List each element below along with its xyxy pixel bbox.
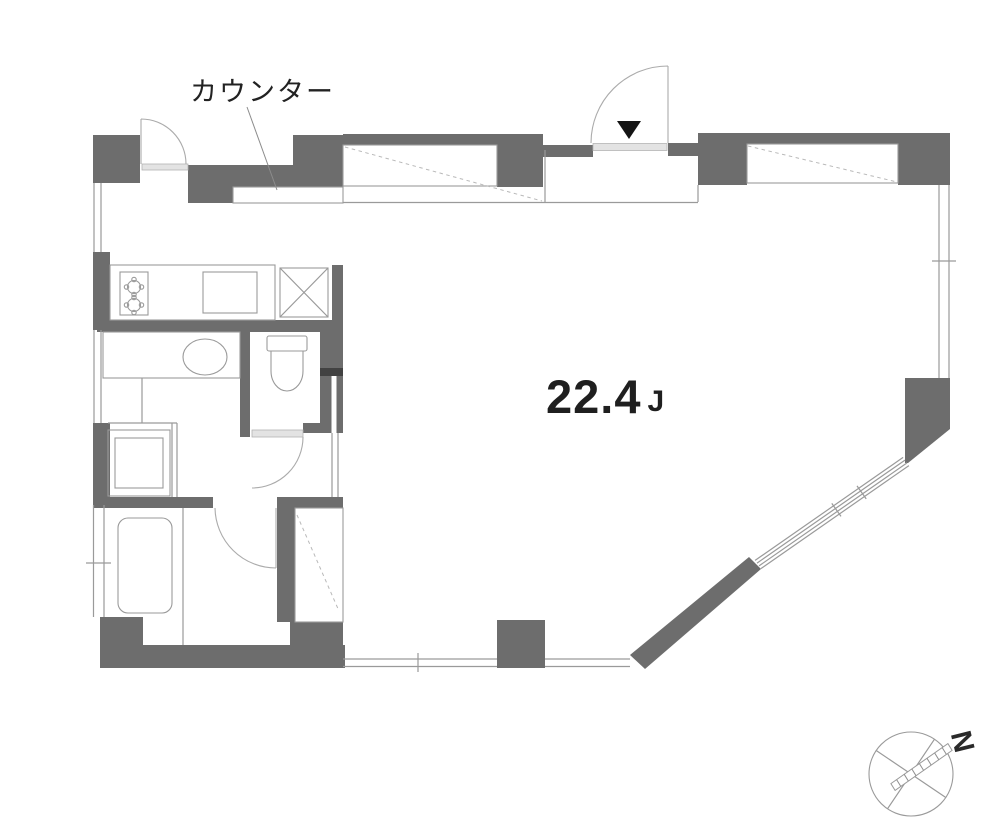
closet-lower-diagonal — [297, 515, 339, 611]
wall — [277, 508, 295, 622]
wall — [240, 332, 250, 437]
entrance-marker-icon — [617, 121, 641, 139]
wall-diagonal — [630, 557, 761, 669]
wall — [93, 423, 110, 508]
refrigerator-space-icon — [280, 268, 328, 317]
wall — [100, 617, 143, 668]
toilet-icon — [267, 336, 307, 391]
window-diagonal — [755, 457, 909, 568]
kitchen — [110, 265, 328, 320]
wall — [93, 252, 110, 330]
counter-bar — [233, 187, 343, 203]
closet-lower — [295, 508, 343, 622]
door-top-left — [141, 119, 186, 164]
wall — [343, 134, 543, 145]
pocket-door-track — [320, 368, 343, 376]
wall-corner — [905, 378, 950, 463]
bathtub-icon — [118, 518, 172, 613]
wall — [698, 133, 950, 144]
counter-label: カウンター — [190, 77, 335, 107]
washing-machine-icon — [108, 430, 170, 496]
bathroom-door — [215, 508, 276, 568]
toilet-room — [267, 336, 307, 391]
wall — [93, 135, 140, 183]
entrance-sill — [593, 144, 667, 151]
wall — [293, 135, 343, 187]
wall — [188, 165, 233, 203]
door-sill — [252, 430, 303, 437]
washroom — [103, 332, 240, 497]
labels: カウンター 22.4J — [190, 77, 664, 423]
floor-plan-drawing: カウンター 22.4J N — [0, 0, 1007, 840]
window-bottom-right — [545, 659, 630, 667]
window-left-lower — [86, 505, 111, 617]
window-bottom-left — [343, 653, 497, 672]
wall — [290, 622, 343, 668]
washbasin-icon — [183, 339, 227, 375]
wall — [332, 265, 343, 332]
wall — [898, 144, 950, 185]
thin-partition — [332, 433, 338, 497]
closet-entry — [343, 145, 497, 186]
area-label: 22.4J — [546, 370, 664, 423]
wall — [543, 145, 593, 157]
window-right — [932, 185, 956, 378]
windows — [86, 183, 956, 672]
pocket-door-slot — [332, 376, 337, 433]
wall — [698, 144, 747, 185]
compass: N — [869, 728, 980, 816]
wall — [497, 145, 543, 187]
door-sill — [142, 164, 188, 170]
compass-north-label: N — [944, 728, 980, 756]
window-left-upper — [94, 183, 101, 252]
wall — [108, 497, 213, 508]
window-left-middle — [94, 330, 101, 423]
wall — [277, 497, 343, 508]
floor-plan: カウンター 22.4J N — [0, 0, 1007, 840]
toilet-door — [252, 437, 303, 488]
wall-pillar — [497, 620, 545, 668]
walls — [93, 133, 950, 669]
wall — [233, 165, 293, 187]
wall — [668, 143, 698, 156]
wall — [97, 320, 343, 332]
closet-top-right — [747, 144, 898, 183]
